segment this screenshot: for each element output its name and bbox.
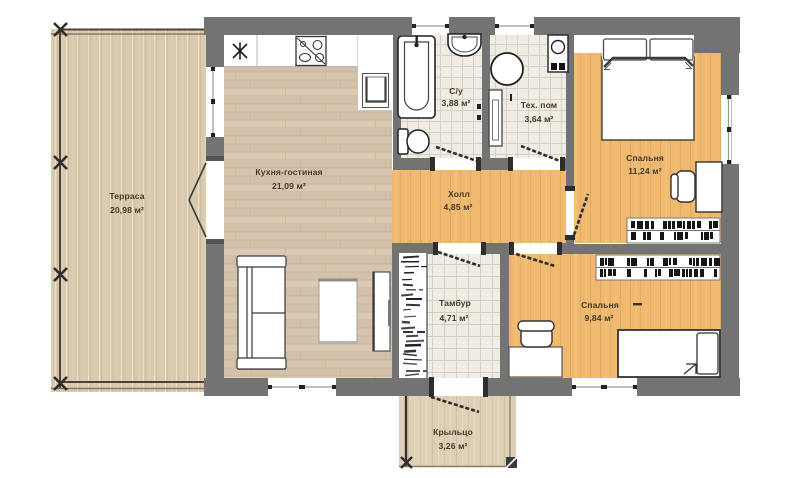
svg-text:Тамбур: Тамбур xyxy=(439,298,471,308)
svg-text:4,85 м²: 4,85 м² xyxy=(443,202,472,212)
svg-text:Холл: Холл xyxy=(448,189,470,199)
svg-text:3,88 м²: 3,88 м² xyxy=(441,98,470,108)
svg-text:Терраса: Терраса xyxy=(109,191,144,201)
svg-text:3,26 м²: 3,26 м² xyxy=(438,441,467,451)
svg-text:Спальня: Спальня xyxy=(581,300,619,310)
svg-text:9,84 м²: 9,84 м² xyxy=(584,313,613,323)
svg-text:Спальня: Спальня xyxy=(626,153,664,163)
svg-text:Крыльцо: Крыльцо xyxy=(433,427,473,437)
svg-text:Тех. пом: Тех. пом xyxy=(521,100,558,110)
svg-text:С/у: С/у xyxy=(449,86,463,96)
svg-text:4,71 м²: 4,71 м² xyxy=(439,313,468,323)
svg-text:3,64 м²: 3,64 м² xyxy=(524,114,553,124)
svg-text:20,98 м²: 20,98 м² xyxy=(110,205,144,215)
svg-text:21,09 м²: 21,09 м² xyxy=(272,181,306,191)
svg-text:Кухня-гостиная: Кухня-гостиная xyxy=(255,167,322,177)
svg-text:11,24 м²: 11,24 м² xyxy=(628,166,661,176)
